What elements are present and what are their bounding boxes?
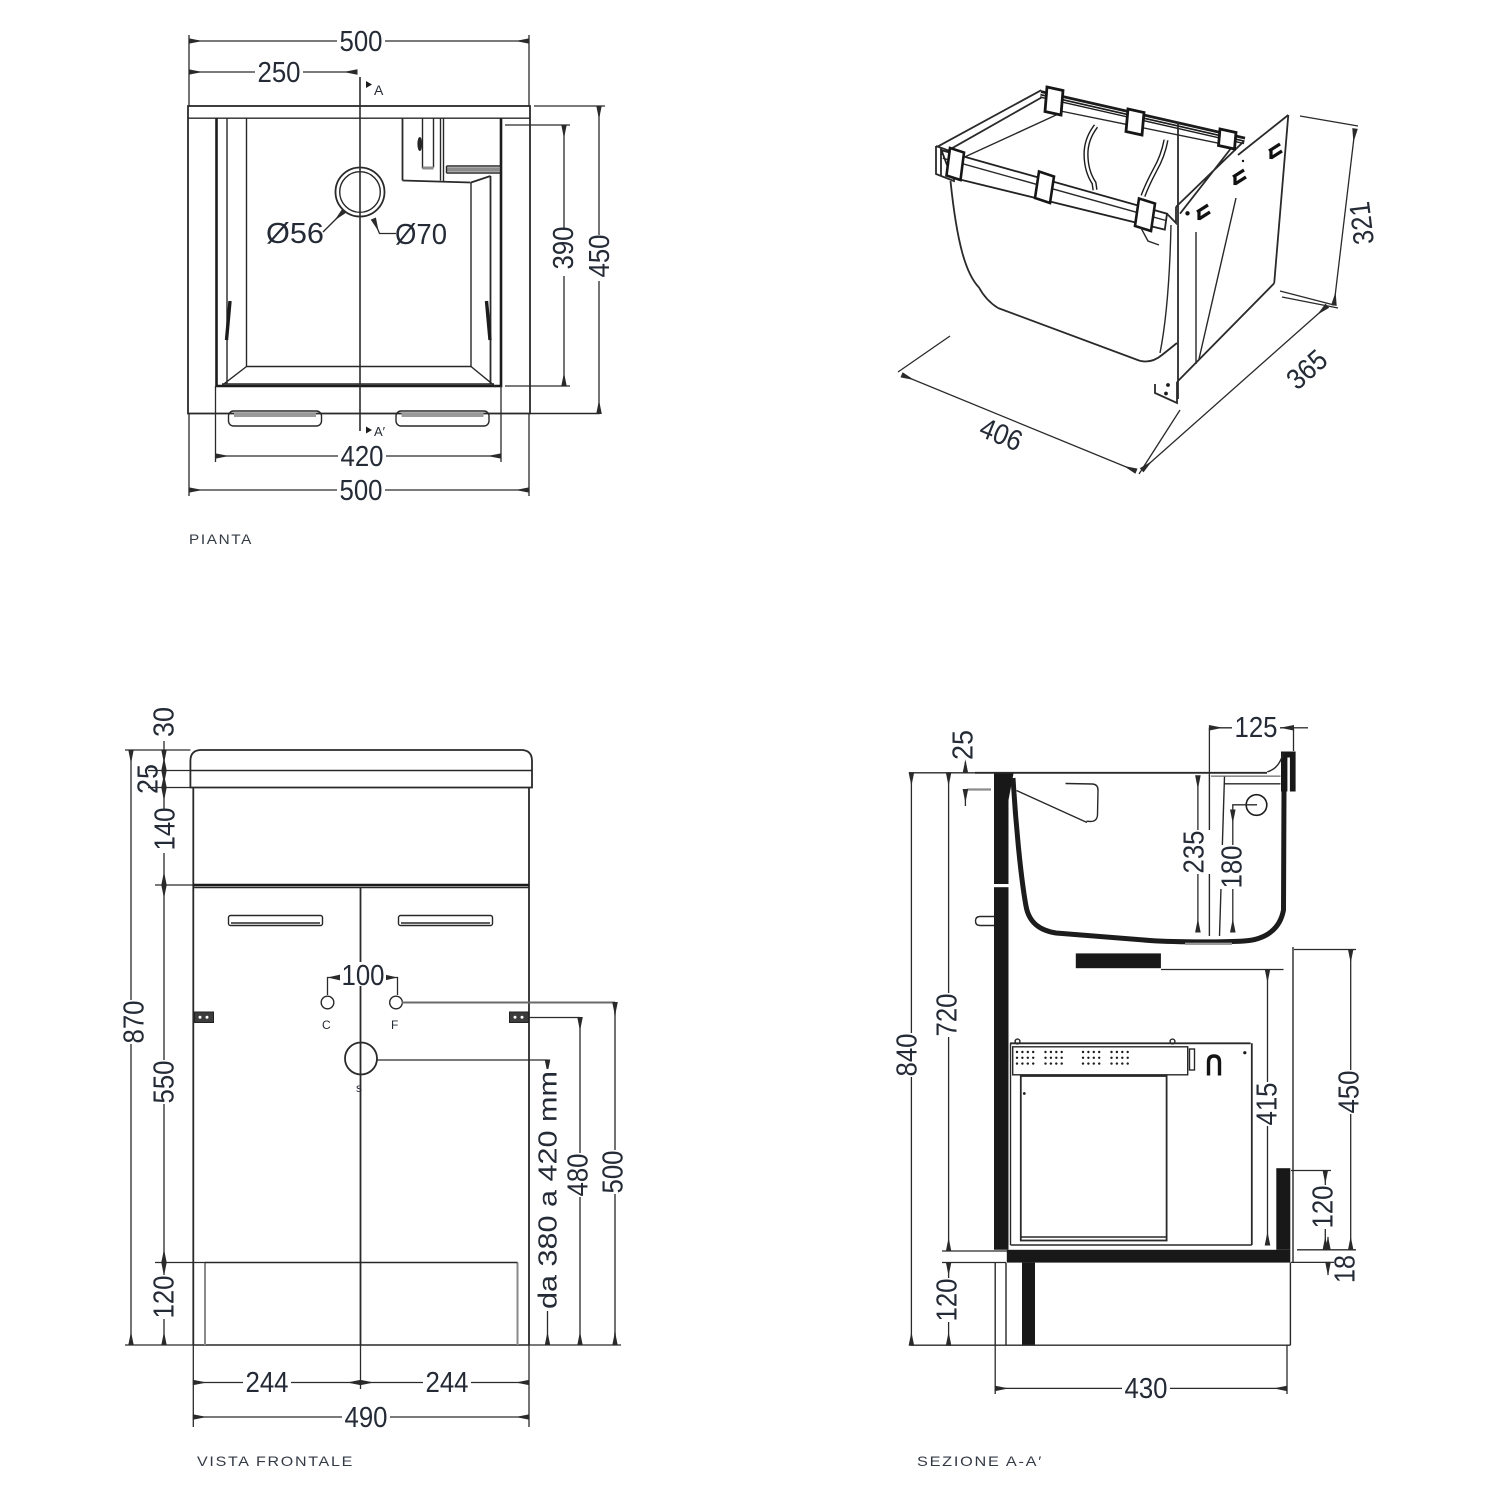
svg-text:120: 120: [932, 1279, 964, 1322]
svg-text:A: A: [374, 82, 384, 98]
svg-text:100: 100: [342, 960, 385, 992]
svg-text:125: 125: [1235, 712, 1278, 744]
svg-text:120: 120: [1308, 1186, 1340, 1229]
svg-text:430: 430: [1125, 1373, 1168, 1405]
svg-text:18: 18: [1330, 1255, 1362, 1283]
svg-text:390: 390: [548, 227, 580, 270]
svg-text:720: 720: [932, 994, 964, 1037]
svg-text:500: 500: [598, 1151, 630, 1194]
svg-text:180: 180: [1217, 846, 1249, 889]
svg-text:25: 25: [948, 730, 980, 760]
svg-text:870: 870: [119, 1001, 151, 1044]
svg-text:140: 140: [150, 808, 182, 851]
svg-text:PIANTA: PIANTA: [189, 531, 253, 547]
svg-text:244: 244: [426, 1367, 469, 1399]
svg-text:25: 25: [133, 764, 165, 794]
svg-text:Ø70: Ø70: [395, 219, 447, 251]
svg-text:SEZIONE A-A′: SEZIONE A-A′: [917, 1453, 1043, 1469]
svg-text:Ø56: Ø56: [266, 218, 324, 250]
svg-text:235: 235: [1179, 831, 1211, 874]
svg-text:415: 415: [1252, 1083, 1284, 1126]
svg-text:480: 480: [563, 1154, 595, 1197]
svg-text:450: 450: [584, 235, 616, 278]
svg-text:840: 840: [892, 1034, 924, 1077]
svg-text:C: C: [322, 1018, 331, 1032]
svg-text:120: 120: [149, 1276, 181, 1319]
svg-text:490: 490: [345, 1402, 388, 1434]
svg-text:321: 321: [1344, 200, 1381, 246]
svg-text:500: 500: [340, 475, 383, 507]
svg-text:VISTA FRONTALE: VISTA FRONTALE: [197, 1453, 354, 1469]
svg-text:s: s: [356, 1081, 362, 1095]
svg-text:450: 450: [1334, 1071, 1366, 1114]
svg-text:250: 250: [258, 57, 301, 89]
svg-text:244: 244: [246, 1367, 289, 1399]
svg-text:F: F: [391, 1018, 398, 1032]
svg-text:550: 550: [149, 1061, 181, 1104]
svg-text:A′: A′: [374, 424, 386, 439]
svg-text:420: 420: [341, 441, 384, 473]
svg-text:30: 30: [149, 707, 181, 737]
svg-text:da 380 a 420 mm: da 380 a 420 mm: [533, 1071, 563, 1309]
svg-text:500: 500: [340, 26, 383, 58]
